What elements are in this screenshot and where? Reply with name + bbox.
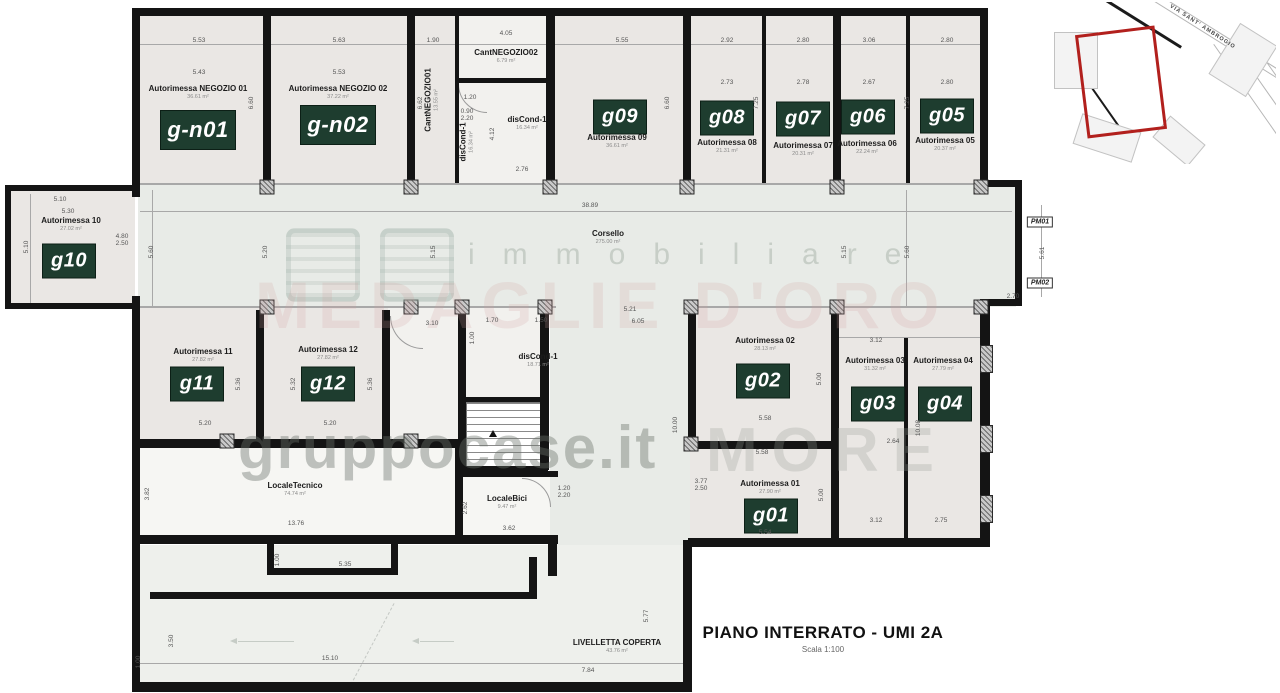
dimension-label: 5.15: [842, 246, 849, 259]
wall: [683, 16, 691, 183]
dimension-label: 3.12: [870, 518, 883, 525]
page-title: PIANO INTERRATO - UMI 2A: [703, 623, 944, 643]
dimension-label: 15.10: [322, 656, 338, 663]
dimension-label: 2.50: [116, 241, 129, 248]
dimension-label: 3.62: [503, 526, 516, 533]
room-name: Autorimessa 11: [173, 347, 232, 357]
column: [980, 425, 993, 453]
dimension-label: 5.35: [339, 562, 352, 569]
garage-badge: g-n01: [160, 110, 236, 150]
dimension-label: 1.00: [136, 656, 143, 669]
wall: [460, 397, 548, 402]
dimension-line: [140, 663, 686, 664]
wall: [529, 557, 537, 599]
wall: [683, 540, 692, 692]
dimension-label: 1.70: [486, 318, 499, 325]
dimension-label: 2.80: [797, 38, 810, 45]
room-label: LocaleBici 9.47 m²: [487, 494, 527, 511]
room-label: Autorimessa 10 27.02 m²: [41, 216, 101, 233]
column: [974, 180, 989, 195]
garage-badge: g04: [918, 387, 972, 422]
dimension-label: 3.82: [145, 488, 152, 501]
room-area: 16.34 m²: [469, 122, 476, 161]
dimension-label: 4.05: [500, 31, 513, 38]
scale-label: Scala 1:100: [703, 645, 944, 654]
column: [980, 345, 993, 373]
wall: [132, 8, 988, 16]
column: [684, 437, 699, 452]
room-area: 18.71 m²: [518, 362, 557, 369]
watermark-medaglie-doro: MEDAGLIE D'ORO: [255, 272, 947, 338]
dimension-label: 6.60: [249, 97, 256, 110]
column: [680, 180, 695, 195]
wall: [5, 303, 138, 309]
room-area: 21.31 m²: [697, 148, 757, 155]
wall: [548, 540, 557, 576]
room-area: 43.76 m²: [573, 648, 661, 655]
wall: [267, 568, 398, 575]
wall: [980, 8, 988, 188]
garage-badge: g07: [776, 102, 830, 137]
dimension-label: 5.30: [62, 209, 75, 216]
room-name: Autorimessa 03: [845, 356, 905, 366]
column: [830, 180, 845, 195]
room-name: disCond-1: [507, 115, 546, 125]
garage-badge: g06: [841, 100, 895, 135]
dimension-label: 5.32: [291, 378, 298, 391]
watermark-gruppocase: gruppocase.it: [238, 418, 657, 478]
room-area: 22.24 m²: [837, 149, 897, 156]
room-area: 16.34 m²: [507, 125, 546, 132]
dimension-label: 5.20: [263, 246, 270, 259]
dimension-label: 6.62: [418, 97, 425, 110]
room-area: 37.22 m²: [289, 94, 388, 101]
wall: [132, 682, 692, 692]
room-label: disCond-1 16.34 m²: [459, 122, 476, 161]
room-name: Autorimessa NEGOZIO 02: [289, 84, 388, 94]
room-name: Autorimessa 01: [740, 479, 800, 489]
dimension-label: 38.89: [582, 203, 598, 210]
ramp-arrow-line: [238, 641, 294, 642]
dimension-label: 5.20: [199, 421, 212, 428]
floor-plan: immobiliare MEDAGLIE D'ORO gruppocase.it…: [0, 0, 1280, 693]
dimension-label: 3.06: [863, 38, 876, 45]
room-area: 31.32 m²: [845, 366, 905, 373]
room-label: Autorimessa 08 21.31 m²: [697, 138, 757, 155]
dimension-label: 1.00: [275, 554, 282, 567]
dimension-label: 5.58: [759, 416, 772, 423]
room-label: Autorimessa 11 27.82 m²: [173, 347, 232, 364]
dimension-label: 5.00: [819, 489, 826, 502]
parking-marker-pm02: PM02: [1027, 278, 1053, 289]
dimension-label: 1.00: [470, 332, 477, 345]
dimension-label: 10.00: [673, 417, 680, 433]
room-label: LocaleTecnico 74.74 m²: [268, 481, 323, 498]
room-label: Autorimessa 03 31.32 m²: [845, 356, 905, 373]
room-label: Autorimessa NEGOZIO 02 37.22 m²: [289, 84, 388, 101]
dimension-label: 2.64: [887, 439, 900, 446]
dimension-label: 5.61: [1040, 247, 1047, 260]
dimension-label: 5.10: [24, 241, 31, 254]
room-label: CantNEGOZIO02 6.79 m²: [474, 48, 538, 65]
wall: [132, 543, 140, 691]
dimension-label: 5.43: [193, 70, 206, 77]
room-area: 275.00 m²: [592, 239, 624, 246]
garage-badge: g12: [301, 367, 355, 402]
wall: [546, 16, 555, 183]
dimension-label: 2.62: [463, 502, 470, 515]
room-area: 27.82 m²: [173, 357, 232, 364]
room-area: 36.61 m²: [149, 94, 248, 101]
garage-badge: g03: [851, 387, 905, 422]
dimension-label: 7.25: [905, 97, 912, 110]
column: [980, 495, 993, 523]
column: [974, 300, 989, 315]
room-name: Autorimessa 05: [915, 136, 975, 146]
garage-badge: g-n02: [300, 105, 376, 145]
dimension-label: 5.10: [54, 197, 67, 204]
room-area: 13.55 m²: [434, 68, 441, 132]
room-label: Autorimessa 04 27.79 m²: [913, 356, 973, 373]
column: [404, 180, 419, 195]
room-area: 36.61 m²: [587, 143, 647, 150]
dimension-label: 2.76: [516, 167, 529, 174]
garage-badge: g02: [736, 364, 790, 399]
wall: [1015, 180, 1022, 306]
wall: [458, 78, 548, 83]
room-name: Autorimessa 12: [298, 345, 358, 355]
room-label: disCond-1 16.34 m²: [507, 115, 546, 132]
parking-marker-pm01: PM01: [1027, 217, 1053, 228]
room-area: 20.31 m²: [773, 151, 833, 158]
dimension-label: 7.84: [582, 668, 595, 675]
inset-site-outline: [1075, 26, 1167, 139]
dimension-label: 5.36: [236, 378, 243, 391]
dimension-label: 1.90: [427, 38, 440, 45]
room-label: Autorimessa 02 28.13 m²: [735, 336, 795, 353]
ramp-arrow-head: [412, 638, 419, 644]
watermark-more: MORE: [706, 420, 948, 482]
room-label: CantNEGOZIO01 13.55 m²: [424, 68, 441, 132]
room-name: Autorimessa 07: [773, 141, 833, 151]
dimension-label: 2.20: [558, 493, 571, 500]
room-area: 74.74 m²: [268, 491, 323, 498]
room-name: disCond-1: [459, 122, 469, 161]
dimension-label: 3.50: [169, 635, 176, 648]
room-name: LIVELLETTA COPERTA: [573, 638, 661, 648]
ramp-arrow-head: [230, 638, 237, 644]
room-name: CantNEGOZIO02: [474, 48, 538, 58]
wall: [132, 535, 558, 544]
garage-badge: g10: [42, 244, 96, 279]
dimension-label: 2.80: [941, 38, 954, 45]
dimension-label: 5.20: [324, 421, 337, 428]
room-name: Corsello: [592, 229, 624, 239]
room-name: LocaleBici: [487, 494, 527, 504]
dimension-label: 6.60: [665, 97, 672, 110]
dimension-label: 2.80: [941, 80, 954, 87]
dimension-label: 2.73: [721, 80, 734, 87]
room-area: 27.82 m²: [298, 355, 358, 362]
wall: [833, 16, 841, 183]
wall: [5, 185, 11, 309]
dimension-label: 2.50: [695, 486, 708, 493]
room-area: 27.02 m²: [41, 226, 101, 233]
room-area: 27.79 m²: [913, 366, 973, 373]
dimension-label: 10.08: [916, 420, 923, 436]
room-name: Autorimessa 06: [837, 139, 897, 149]
dimension-label: 5.53: [333, 70, 346, 77]
column: [543, 180, 558, 195]
room-area: 28.13 m²: [735, 346, 795, 353]
room-name: Autorimessa 02: [735, 336, 795, 346]
dimension-label: 2.78: [797, 80, 810, 87]
wall: [5, 185, 138, 191]
wall: [132, 8, 140, 188]
room-label: Autorimessa 12 27.82 m²: [298, 345, 358, 362]
ramp-arrow-line: [420, 641, 454, 642]
wall: [263, 16, 271, 183]
title-block: PIANO INTERRATO - UMI 2A Scala 1:100: [703, 623, 944, 654]
dimension-label: 1.20: [464, 95, 477, 102]
room-name: Autorimessa 09: [587, 133, 647, 143]
room-label: LIVELLETTA COPERTA 43.76 m²: [573, 638, 661, 655]
garage-badge: g09: [593, 100, 647, 135]
room-label: Autorimessa 06 22.24 m²: [837, 139, 897, 156]
column: [220, 434, 235, 449]
dimension-label: 1.50: [535, 318, 548, 325]
watermark-immobiliare: immobiliare: [468, 240, 929, 270]
room-label: Autorimessa NEGOZIO 01 36.61 m²: [149, 84, 248, 101]
room-area: 27.90 m²: [740, 489, 800, 496]
dimension-label: 7.25: [754, 97, 761, 110]
dimension-label: 5.60: [149, 246, 156, 259]
room-label: Autorimessa 07 20.31 m²: [773, 141, 833, 158]
dimension-label: 13.76: [288, 521, 304, 528]
dimension-label: 2.75: [935, 518, 948, 525]
wall: [150, 592, 537, 599]
room-name: CantNEGOZIO01: [424, 68, 434, 132]
wall: [132, 303, 140, 543]
dimension-label: 5.55: [616, 38, 629, 45]
room-label: Autorimessa 05 20.37 m²: [915, 136, 975, 153]
dimension-line: [140, 211, 1012, 212]
room-label: disCond-1 18.71 m²: [518, 352, 557, 369]
dimension-label: 5.63: [333, 38, 346, 45]
dimension-label: 6.05: [632, 319, 645, 326]
room-name: Autorimessa 08: [697, 138, 757, 148]
room-label: Autorimessa 01 27.90 m²: [740, 479, 800, 496]
dimension-label: 5.77: [644, 610, 651, 623]
dimension-label: 5.00: [817, 373, 824, 386]
room-name: Autorimessa 10: [41, 216, 101, 226]
garage-badge: g08: [700, 101, 754, 136]
room-label: Autorimessa 09 36.61 m²: [587, 133, 647, 150]
wall: [762, 16, 766, 183]
dimension-label: 3.10: [426, 321, 439, 328]
wall: [407, 16, 415, 183]
dimension-label: 2.67: [863, 80, 876, 87]
room-label: Corsello 275.00 m²: [592, 229, 624, 246]
room-area: 6.79 m²: [474, 58, 538, 65]
room-area: 20.37 m²: [915, 146, 975, 153]
dimension-label: 5.21: [624, 307, 637, 314]
dimension-label: 5.58: [756, 450, 769, 457]
dimension-label: 2.20: [461, 116, 474, 123]
garage-badge: g05: [920, 99, 974, 134]
room-name: Autorimessa 04: [913, 356, 973, 366]
dimension-label: 4.12: [490, 128, 497, 141]
garage-badge: g11: [170, 367, 224, 402]
column: [260, 180, 275, 195]
dimension-label: 5.15: [431, 246, 438, 259]
dimension-label: 3.12: [870, 338, 883, 345]
dimension-label: 5.60: [905, 246, 912, 259]
dimension-label: 5.54: [759, 530, 772, 537]
dimension-label: 2.92: [721, 38, 734, 45]
room-name: Autorimessa NEGOZIO 01: [149, 84, 248, 94]
room-area: 9.47 m²: [487, 504, 527, 511]
wall: [132, 185, 140, 197]
room-name: LocaleTecnico: [268, 481, 323, 491]
dimension-label: 5.53: [193, 38, 206, 45]
dimension-label: 5.36: [368, 378, 375, 391]
inset-map: VIA SANT' AMBROGIO: [1036, 2, 1276, 164]
dimension-label: 2.70: [1007, 294, 1020, 301]
room-name: disCond-1: [518, 352, 557, 362]
